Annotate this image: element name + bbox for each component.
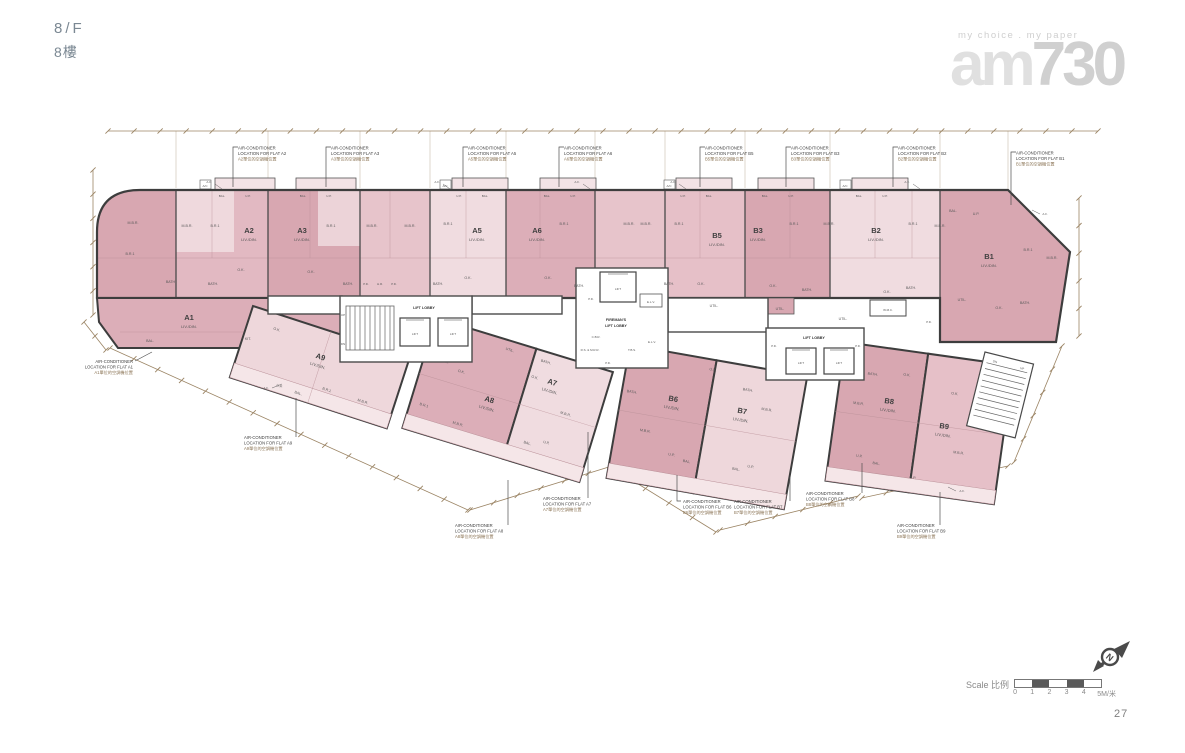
room-label: M.B.R. bbox=[624, 222, 635, 226]
lift-label: LIFT bbox=[450, 332, 456, 336]
callout-line: LOCATION FOR FLAT B3 bbox=[791, 151, 840, 156]
room-label: BATH. bbox=[802, 288, 812, 292]
callout-line: AIR-CONDITIONER bbox=[238, 146, 276, 151]
room-label: T.B.S. bbox=[628, 348, 636, 352]
ac-callout-a9: AIR-CONDITIONER LOCATION FOR FLAT A9 A9單… bbox=[244, 398, 296, 452]
room-label: BAL. bbox=[762, 194, 769, 198]
flat-label-b9: B9 bbox=[939, 421, 950, 431]
callout-line: AIR-CONDITIONER bbox=[95, 359, 133, 364]
room-label: KIT. bbox=[245, 337, 251, 341]
callout-line: A9單位的空調機位置 bbox=[244, 445, 283, 452]
callout-line: AIR-CONDITIONER bbox=[564, 146, 602, 151]
callout-line: B5單位的空調機位置 bbox=[705, 156, 744, 163]
flat-label-b7: B7 bbox=[737, 406, 748, 417]
room-label: U.P. bbox=[788, 194, 794, 198]
scale-label: Scale 比例 bbox=[966, 678, 1009, 691]
room-label: U.P. bbox=[456, 194, 462, 198]
room-label: W.M.C. bbox=[883, 308, 893, 312]
callout-line: B6單位的空調機位置 bbox=[683, 509, 722, 516]
room-label: O.K. bbox=[307, 270, 314, 274]
af-label: A.F. bbox=[574, 180, 579, 184]
room-label: BAL. bbox=[706, 194, 713, 198]
room-label: UTIL. bbox=[710, 304, 719, 308]
callout-line: LOCATION FOR FLAT A2 bbox=[238, 151, 287, 156]
callout-line: LOCATION FOR FLAT B1 bbox=[1016, 156, 1065, 161]
flat-sub-b3: LIV./DIN. bbox=[750, 237, 766, 242]
scale-bar: Scale 比例 0 1 2 3 4 5M/米 bbox=[966, 678, 1102, 691]
callout-line: LOCATION FOR FLAT A6 bbox=[564, 151, 613, 156]
flat-label-a1: A1 bbox=[184, 313, 194, 322]
af-label: A.F. bbox=[1042, 212, 1047, 216]
flat-label-b8: B8 bbox=[884, 396, 895, 406]
floor-plan: A9 LIV./DIN. O.K. B.R.1 M.B.R. U.P. BAL.… bbox=[0, 0, 1185, 753]
page-number: 27 bbox=[1114, 708, 1128, 720]
callout-line: LOCATION FOR FLAT A8 bbox=[455, 529, 504, 534]
room-label: O.K. bbox=[544, 276, 551, 280]
ac-callout-a1: AIR-CONDITIONER LOCATION FOR FLAT A1 A1單… bbox=[85, 352, 152, 376]
callout-line: AIR-CONDITIONER bbox=[705, 146, 743, 151]
lift-lobby-label: LIFT LOBBY bbox=[803, 336, 825, 340]
room-label: UTIL. bbox=[958, 298, 967, 302]
room-label: BAL. bbox=[856, 194, 863, 198]
scale-tick: 5M/米 bbox=[1097, 689, 1116, 699]
callout-line: A6單位的空調機位置 bbox=[564, 156, 603, 163]
lift-label: LIFT bbox=[412, 332, 418, 336]
callout-line: LOCATION FOR FLAT A1 bbox=[85, 365, 134, 370]
room-label: P.D. bbox=[363, 282, 369, 286]
room-label: O.K. bbox=[995, 306, 1002, 310]
room-label: BAL. bbox=[544, 194, 551, 198]
flat-label-b3: B3 bbox=[753, 226, 763, 235]
room-label: U.P. bbox=[326, 194, 332, 198]
room-label: BATH. bbox=[574, 284, 584, 288]
ac-box-label: A/C bbox=[666, 184, 672, 188]
firemans-lobby-label2: LIFT LOBBY bbox=[605, 324, 627, 328]
callout-line: LOCATION FOR FLAT B2 bbox=[898, 151, 947, 156]
room-label: BATH. bbox=[906, 286, 916, 290]
callout-line: AIR-CONDITIONER bbox=[897, 523, 935, 528]
room-label: O.K. bbox=[883, 290, 890, 294]
room-label: M.B.R. bbox=[182, 224, 193, 228]
callout-line: A5單位的空調機位置 bbox=[468, 156, 507, 163]
room-label: BATH. bbox=[433, 282, 443, 286]
flat-label-a5: A5 bbox=[472, 226, 482, 235]
room-label: P.D. bbox=[605, 361, 611, 365]
callout-line: LOCATION FOR FLAT A5 bbox=[468, 151, 517, 156]
flat-sub-b1: LIV./DIN. bbox=[981, 263, 997, 268]
room-label: BAL. bbox=[482, 194, 489, 198]
flat-label-a6: A6 bbox=[532, 226, 542, 235]
room-label: B.R.1 bbox=[1024, 248, 1033, 252]
flat-sub-b5: LIV./DIN. bbox=[709, 242, 725, 247]
flat-sub-a5: LIV./DIN. bbox=[469, 237, 485, 242]
room-label: M.B.R. bbox=[641, 222, 652, 226]
room-label: BATH. bbox=[208, 282, 218, 286]
callout-line: LOCATION FOR FLAT B7 bbox=[734, 505, 783, 510]
stair-dn-label: DN bbox=[341, 342, 345, 346]
callout-line: A3單位的空調機位置 bbox=[331, 156, 370, 163]
room-label: B.R.1 bbox=[327, 224, 336, 228]
scale-tick: 2 bbox=[1047, 689, 1051, 696]
room-label: B.R.1 bbox=[909, 222, 918, 226]
flat-sub-a3: LIV./DIN. bbox=[294, 237, 310, 242]
flat-sub-b2: LIV./DIN. bbox=[868, 237, 884, 242]
flat-sub-a2: LIV./DIN. bbox=[241, 237, 257, 242]
callout-line: LOCATION FOR FLAT A9 bbox=[244, 441, 293, 446]
callout-line: AIR-CONDITIONER bbox=[543, 496, 581, 501]
callout-line: LOCATION FOR FLAT A7 bbox=[543, 502, 592, 507]
room-label: BATH. bbox=[343, 282, 353, 286]
ac-callout-b9: AIR-CONDITIONER LOCATION FOR FLAT B9 B9單… bbox=[897, 492, 946, 540]
callout-line: AIR-CONDITIONER bbox=[244, 435, 282, 440]
flat-label-b5: B5 bbox=[712, 231, 722, 240]
room-label: BAL. bbox=[146, 339, 154, 343]
room-label: U.P. bbox=[245, 194, 251, 198]
callout-line: AIR-CONDITIONER bbox=[1016, 151, 1054, 156]
lift-label: LIFT bbox=[798, 361, 804, 365]
room-label: UTIL. bbox=[776, 307, 785, 311]
flat-label-b6: B6 bbox=[668, 394, 679, 405]
af-label: A.F. bbox=[904, 180, 909, 184]
room-label: B.R.1 bbox=[444, 222, 453, 226]
flat-label-b1: B1 bbox=[984, 252, 994, 261]
room-label: U.P. bbox=[973, 212, 980, 216]
lift-label: LIFT bbox=[836, 361, 842, 365]
room-label: O.K. bbox=[769, 284, 776, 288]
room-label: P.D. bbox=[588, 297, 594, 301]
callout-line: AIR-CONDITIONER bbox=[331, 146, 369, 151]
callout-line: AIR-CONDITIONER bbox=[683, 499, 721, 504]
room-label: BAL. bbox=[300, 194, 307, 198]
room-label: R.S. & M.R.R. bbox=[581, 348, 600, 352]
room-label: P.D. bbox=[855, 344, 861, 348]
room-label: H.R. bbox=[377, 282, 383, 286]
callout-line: A7單位的空調機位置 bbox=[543, 506, 582, 513]
callout-line: AIR-CONDITIONER bbox=[791, 146, 829, 151]
callout-line: B3單位的空調機位置 bbox=[791, 156, 830, 163]
room-label: M.B.R. bbox=[1047, 256, 1058, 260]
room-label: BATH. bbox=[1020, 301, 1030, 305]
ac-box-label: A/C bbox=[202, 184, 208, 188]
flat-label-b2: B2 bbox=[871, 226, 881, 235]
af-label: A.F. bbox=[434, 180, 439, 184]
room-label: M.B.R. bbox=[367, 224, 378, 228]
callout-line: LOCATION FOR FLAT B9 bbox=[897, 529, 946, 534]
room-label: B.R.1 bbox=[560, 222, 569, 226]
callout-line: LOCATION FOR FLAT B8 bbox=[806, 497, 855, 502]
af-label: A.F. bbox=[959, 489, 964, 493]
af-label: A.F. bbox=[206, 180, 211, 184]
callout-line: B2單位的空調機位置 bbox=[898, 156, 937, 163]
room-label: C.B.R. bbox=[592, 335, 601, 339]
af-label: A.F. bbox=[670, 180, 675, 184]
callout-line: AIR-CONDITIONER bbox=[806, 491, 844, 496]
room-label: O.K. bbox=[237, 268, 244, 272]
flat-label-a3: A3 bbox=[297, 226, 307, 235]
room-label: M.B.R. bbox=[935, 224, 946, 228]
callout-line: AIR-CONDITIONER bbox=[898, 146, 936, 151]
room-label: B.R.1 bbox=[790, 222, 799, 226]
room-label: U.P. bbox=[570, 194, 576, 198]
callout-line: B7單位的空調機位置 bbox=[734, 509, 773, 516]
ac-callout-a8: AIR-CONDITIONER LOCATION FOR FLAT A8 A8單… bbox=[455, 480, 508, 540]
flat-label-a2: A2 bbox=[244, 226, 254, 235]
room-label: E.L.V. bbox=[647, 300, 655, 304]
room-label: M.B.R. bbox=[824, 222, 835, 226]
room-label: B.R.1 bbox=[675, 222, 684, 226]
balconies bbox=[200, 178, 908, 190]
room-label: BAL. bbox=[949, 209, 957, 213]
room-label: O.K. bbox=[464, 276, 471, 280]
scale-tick: 0 bbox=[1013, 689, 1017, 696]
room-label: U.P. bbox=[882, 194, 888, 198]
room-label: BAL. bbox=[219, 194, 226, 198]
callout-line: AIR-CONDITIONER bbox=[455, 523, 493, 528]
room-label: U.P. bbox=[680, 194, 686, 198]
flat-sub-a1: LIV./DIN. bbox=[181, 324, 197, 329]
scale-tick: 3 bbox=[1065, 689, 1069, 696]
room-label: B.R.1 bbox=[211, 224, 220, 228]
callout-line: LOCATION FOR FLAT A3 bbox=[331, 151, 380, 156]
lift-lobby-label: LIFT LOBBY bbox=[413, 306, 435, 310]
callout-line: B1單位的空調機位置 bbox=[1016, 161, 1055, 168]
callout-line: A8單位的空調機位置 bbox=[455, 533, 494, 540]
room-label: M.B.R. bbox=[128, 221, 139, 225]
af-label: A.F. bbox=[263, 386, 268, 390]
firemans-lobby-label: FIREMAN'S bbox=[606, 318, 627, 322]
scale-tick: 1 bbox=[1030, 689, 1034, 696]
room-label: B.R.1 bbox=[126, 252, 135, 256]
lift-label: LIFT bbox=[615, 287, 621, 291]
stair-up-label: UP bbox=[341, 313, 345, 317]
ac-callout-b1: AIR-CONDITIONER LOCATION FOR FLAT B1 B1單… bbox=[1011, 151, 1065, 206]
room-label: P.D. bbox=[926, 320, 932, 324]
ac-box-label: A/C bbox=[842, 184, 848, 188]
callout-line: B8單位的空調機位置 bbox=[806, 501, 845, 508]
flat-sub-a6: LIV./DIN. bbox=[529, 237, 545, 242]
room-label: E.L.V. bbox=[648, 340, 656, 344]
callout-line: AIR-CONDITIONER bbox=[468, 146, 506, 151]
room-label: M.B.R. bbox=[405, 224, 416, 228]
room-label: BATH. bbox=[166, 280, 176, 284]
room-label: P.D. bbox=[391, 282, 397, 286]
callout-line: AIR-CONDITIONER bbox=[734, 499, 772, 504]
callout-line: A1單位的空調機位置 bbox=[94, 369, 133, 376]
scale-ruler: 0 1 2 3 4 5M/米 bbox=[1014, 679, 1102, 688]
room-label: O.K. bbox=[697, 282, 704, 286]
room-label: BATH. bbox=[664, 282, 674, 286]
callout-line: A2單位的空調機位置 bbox=[238, 156, 277, 163]
lower-flats: A9 LIV./DIN. O.K. B.R.1 M.B.R. U.P. BAL.… bbox=[97, 298, 1013, 509]
callout-line: LOCATION FOR FLAT B5 bbox=[705, 151, 754, 156]
room-label: UTIL. bbox=[839, 317, 848, 321]
callout-line: LOCATION FOR FLAT B6 bbox=[683, 505, 732, 510]
north-compass-icon: N bbox=[1093, 641, 1130, 672]
room-label: P.D. bbox=[771, 344, 777, 348]
callout-line: B9單位的空調機位置 bbox=[897, 533, 936, 540]
scale-tick: 4 bbox=[1082, 689, 1086, 696]
